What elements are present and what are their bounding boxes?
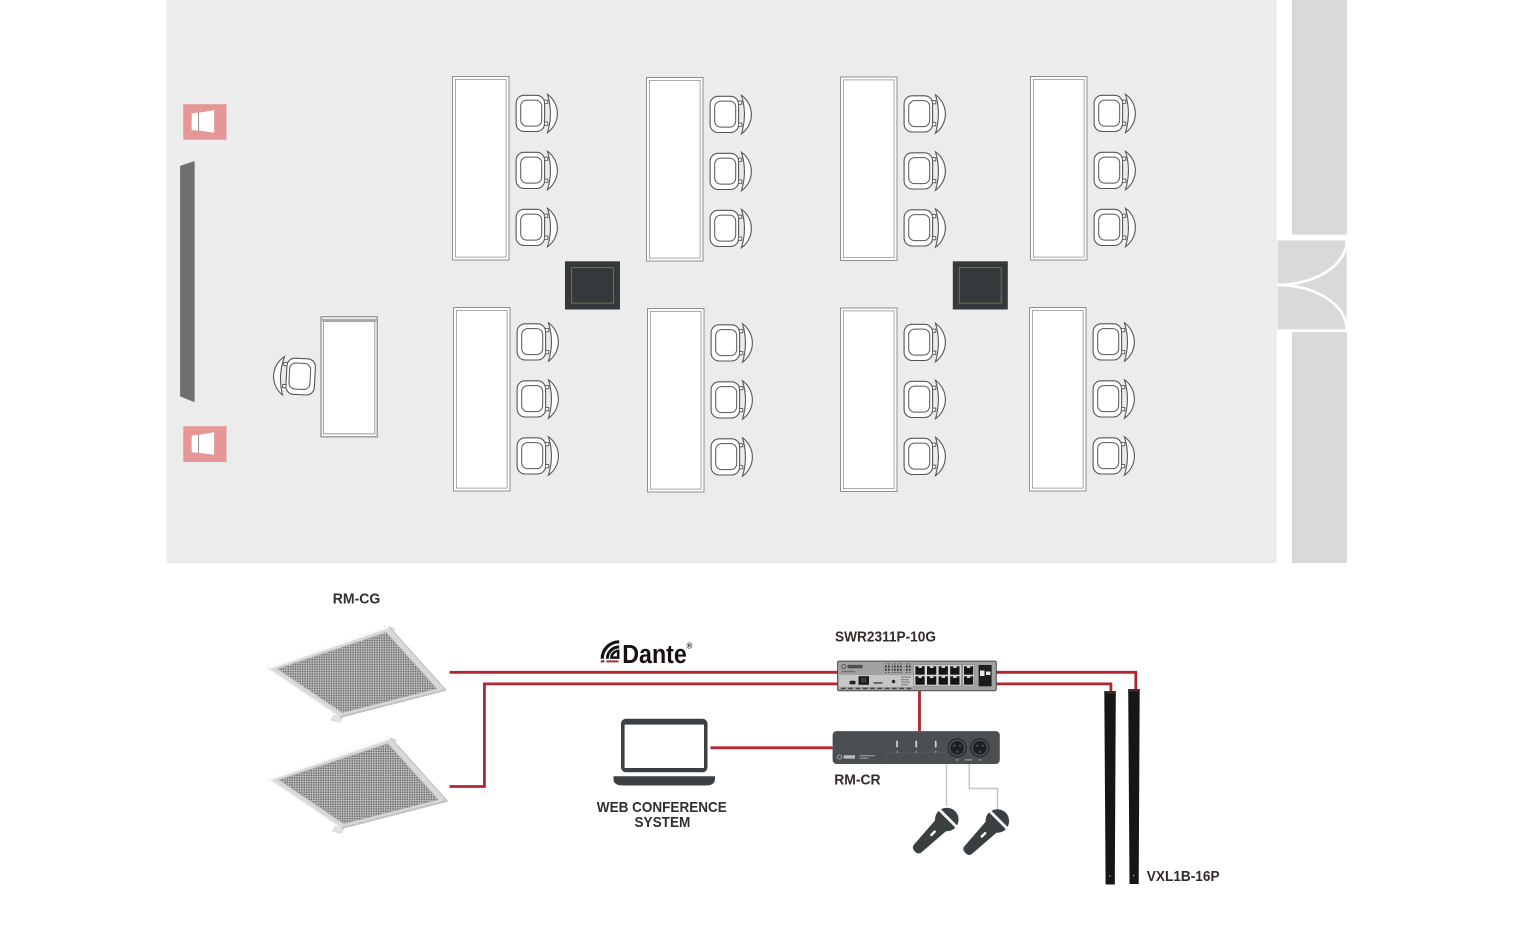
svg-text:®: ® [687, 642, 693, 651]
svg-text:SWR2311P-10G: SWR2311P-10G [835, 628, 936, 645]
svg-text:RM-CR: RM-CR [834, 772, 881, 788]
svg-text:SYSTEM: SYSTEM [635, 815, 691, 831]
svg-text:WEB CONFERENCE: WEB CONFERENCE [597, 800, 727, 816]
svg-text:RM-CG: RM-CG [333, 591, 381, 608]
svg-text:Dante: Dante [622, 641, 687, 669]
svg-text:VXL1B-16P: VXL1B-16P [1147, 869, 1220, 885]
